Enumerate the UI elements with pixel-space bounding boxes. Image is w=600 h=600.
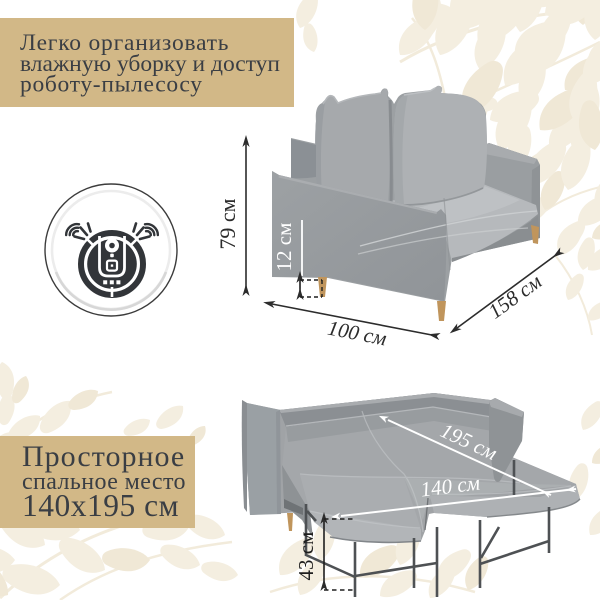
svg-text:12 см: 12 см [272, 223, 296, 272]
svg-text:43 см: 43 см [294, 532, 318, 581]
svg-text:79 см: 79 см [215, 198, 240, 249]
svg-text:140х195 см: 140х195 см [22, 488, 179, 523]
svg-text:роботу-пылесосу: роботу-пылесосу [20, 72, 203, 98]
